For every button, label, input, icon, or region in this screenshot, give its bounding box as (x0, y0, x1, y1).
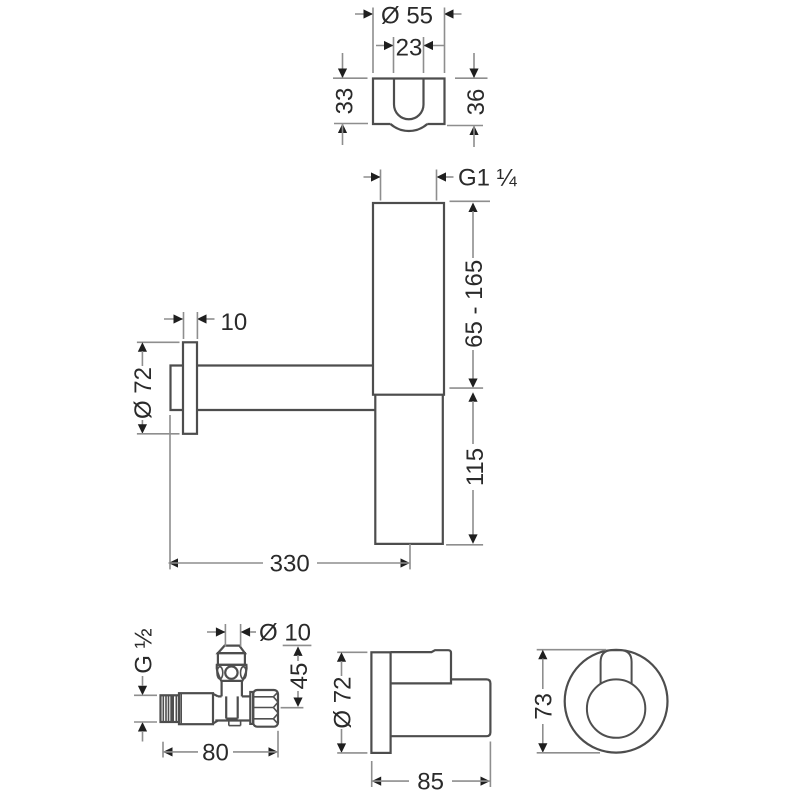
svg-text:Ø 10: Ø 10 (259, 620, 311, 647)
svg-text:330: 330 (270, 551, 310, 578)
svg-text:G ½: G ½ (130, 628, 157, 673)
svg-text:10: 10 (221, 309, 248, 336)
svg-text:85: 85 (417, 769, 444, 796)
svg-text:23: 23 (396, 35, 423, 62)
svg-text:65 - 165: 65 - 165 (461, 260, 488, 348)
svg-text:45: 45 (286, 663, 313, 690)
svg-text:36: 36 (463, 89, 490, 116)
svg-text:73: 73 (531, 693, 558, 720)
svg-text:115: 115 (462, 448, 489, 486)
svg-text:G1 ¼: G1 ¼ (458, 165, 518, 192)
svg-text:Ø 72: Ø 72 (130, 367, 157, 419)
svg-text:Ø 55: Ø 55 (381, 3, 433, 30)
svg-text:33: 33 (331, 88, 358, 115)
svg-text:Ø 72: Ø 72 (329, 677, 356, 729)
svg-text:80: 80 (202, 740, 229, 767)
